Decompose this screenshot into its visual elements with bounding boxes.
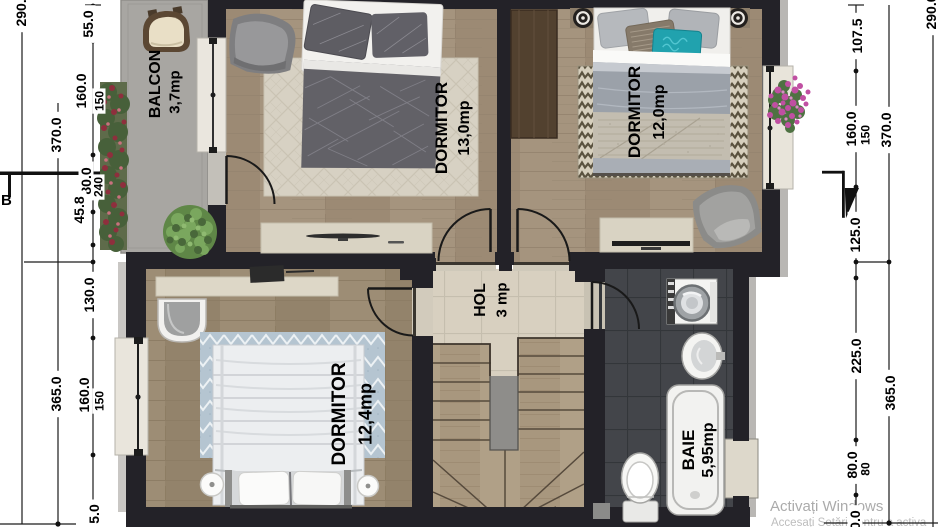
svg-text:30.0: 30.0: [847, 510, 863, 527]
svg-text:13,0mp: 13,0mp: [456, 100, 473, 155]
svg-text:HOL: HOL: [472, 283, 489, 317]
svg-text:160.0: 160.0: [73, 73, 89, 108]
svg-text:370.0: 370.0: [48, 117, 64, 152]
svg-text:BALCON: BALCON: [147, 50, 164, 118]
svg-text:370.0: 370.0: [878, 112, 894, 147]
svg-text:160.0: 160.0: [843, 111, 859, 146]
svg-text:5.0: 5.0: [86, 504, 102, 524]
svg-text:225.0: 225.0: [848, 338, 864, 373]
svg-text:125.0: 125.0: [847, 217, 863, 252]
svg-text:Activați Windows: Activați Windows: [770, 498, 883, 515]
svg-text:DORMITOR: DORMITOR: [625, 66, 644, 158]
svg-text:240: 240: [91, 177, 105, 197]
svg-text:80: 80: [858, 462, 872, 476]
svg-text:150: 150: [858, 125, 872, 145]
svg-text:DORMITOR: DORMITOR: [432, 82, 451, 174]
svg-text:365.0: 365.0: [882, 375, 898, 410]
svg-text:3,7mp: 3,7mp: [166, 70, 183, 113]
svg-text:290.0: 290.0: [13, 0, 29, 27]
svg-text:BAIE: BAIE: [679, 430, 698, 471]
svg-text:160.0: 160.0: [76, 377, 92, 412]
svg-text:B: B: [1, 192, 12, 209]
svg-text:3 mp: 3 mp: [493, 282, 510, 317]
svg-text:5,95mp: 5,95mp: [700, 422, 717, 477]
svg-text:150: 150: [92, 391, 106, 411]
svg-text:DORMITOR: DORMITOR: [329, 362, 350, 465]
svg-text:107.5: 107.5: [849, 18, 865, 53]
svg-text:130.0: 130.0: [81, 277, 97, 312]
svg-text:12,0mp: 12,0mp: [651, 84, 668, 139]
svg-text:12,4mp: 12,4mp: [356, 383, 376, 445]
svg-text:55.0: 55.0: [80, 10, 96, 37]
svg-text:45.8: 45.8: [71, 196, 87, 223]
svg-text:150: 150: [92, 91, 106, 111]
svg-text:365.0: 365.0: [48, 376, 64, 411]
svg-text:290.0: 290.0: [923, 0, 938, 30]
